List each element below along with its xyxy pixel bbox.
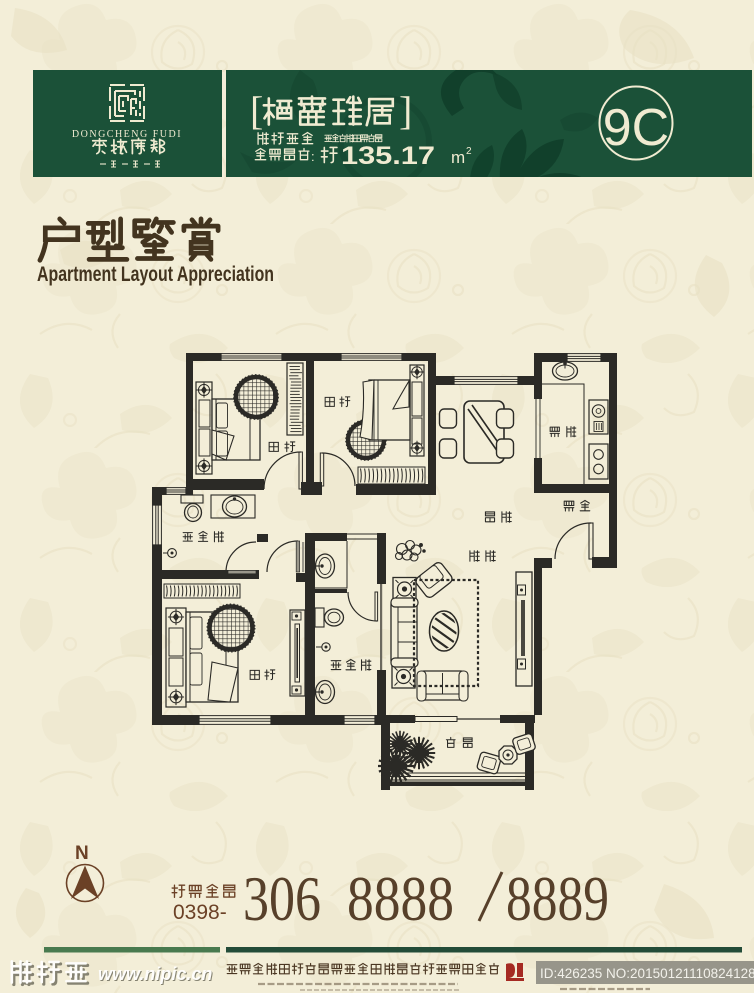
svg-text:N: N [75, 843, 89, 864]
svg-text:135.17: 135.17 [341, 142, 435, 170]
svg-text:8889: 8889 [506, 863, 609, 934]
svg-text:2: 2 [466, 146, 472, 157]
svg-text:ID:426235 NO:20150121110824128: ID:426235 NO:20150121110824128994 [540, 966, 754, 981]
svg-text:0398-: 0398- [173, 901, 227, 924]
svg-text:9C: 9C [603, 99, 669, 157]
svg-text::: : [311, 149, 315, 164]
svg-text:]: ] [399, 88, 412, 133]
svg-text:Apartment Layout Appreciation: Apartment Layout Appreciation [37, 262, 274, 286]
svg-text:m: m [451, 148, 465, 167]
svg-text:DONGCHENG FUDI: DONGCHENG FUDI [72, 129, 182, 140]
svg-text:8888: 8888 [347, 863, 454, 934]
svg-text:www.nipic.cn: www.nipic.cn [98, 964, 212, 984]
svg-text:[: [ [250, 88, 263, 133]
svg-text:306: 306 [243, 863, 321, 934]
